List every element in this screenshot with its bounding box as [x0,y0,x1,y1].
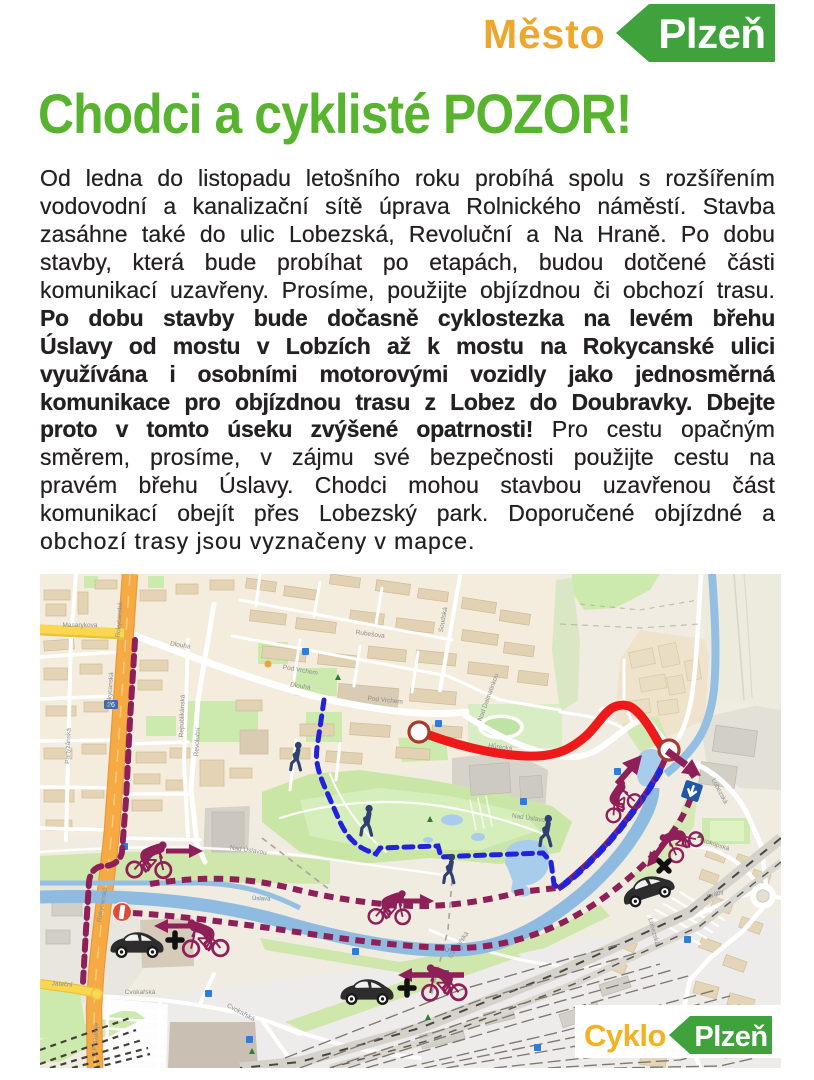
svg-text:Plzeň: Plzeň [658,10,765,57]
svg-text:Úslava: Úslava [252,895,271,903]
svg-text:Masarykova: Masarykova [62,622,97,629]
svg-text:Cvokařská: Cvokařská [125,989,156,996]
svg-text:Plzeň: Plzeň [694,1021,767,1053]
svg-text:Město: Město [483,11,605,57]
svg-text:Partyzánská: Partyzánská [64,728,72,764]
svg-text:Jateční: Jateční [51,980,73,988]
svg-text:Cyklo: Cyklo [584,1018,666,1053]
